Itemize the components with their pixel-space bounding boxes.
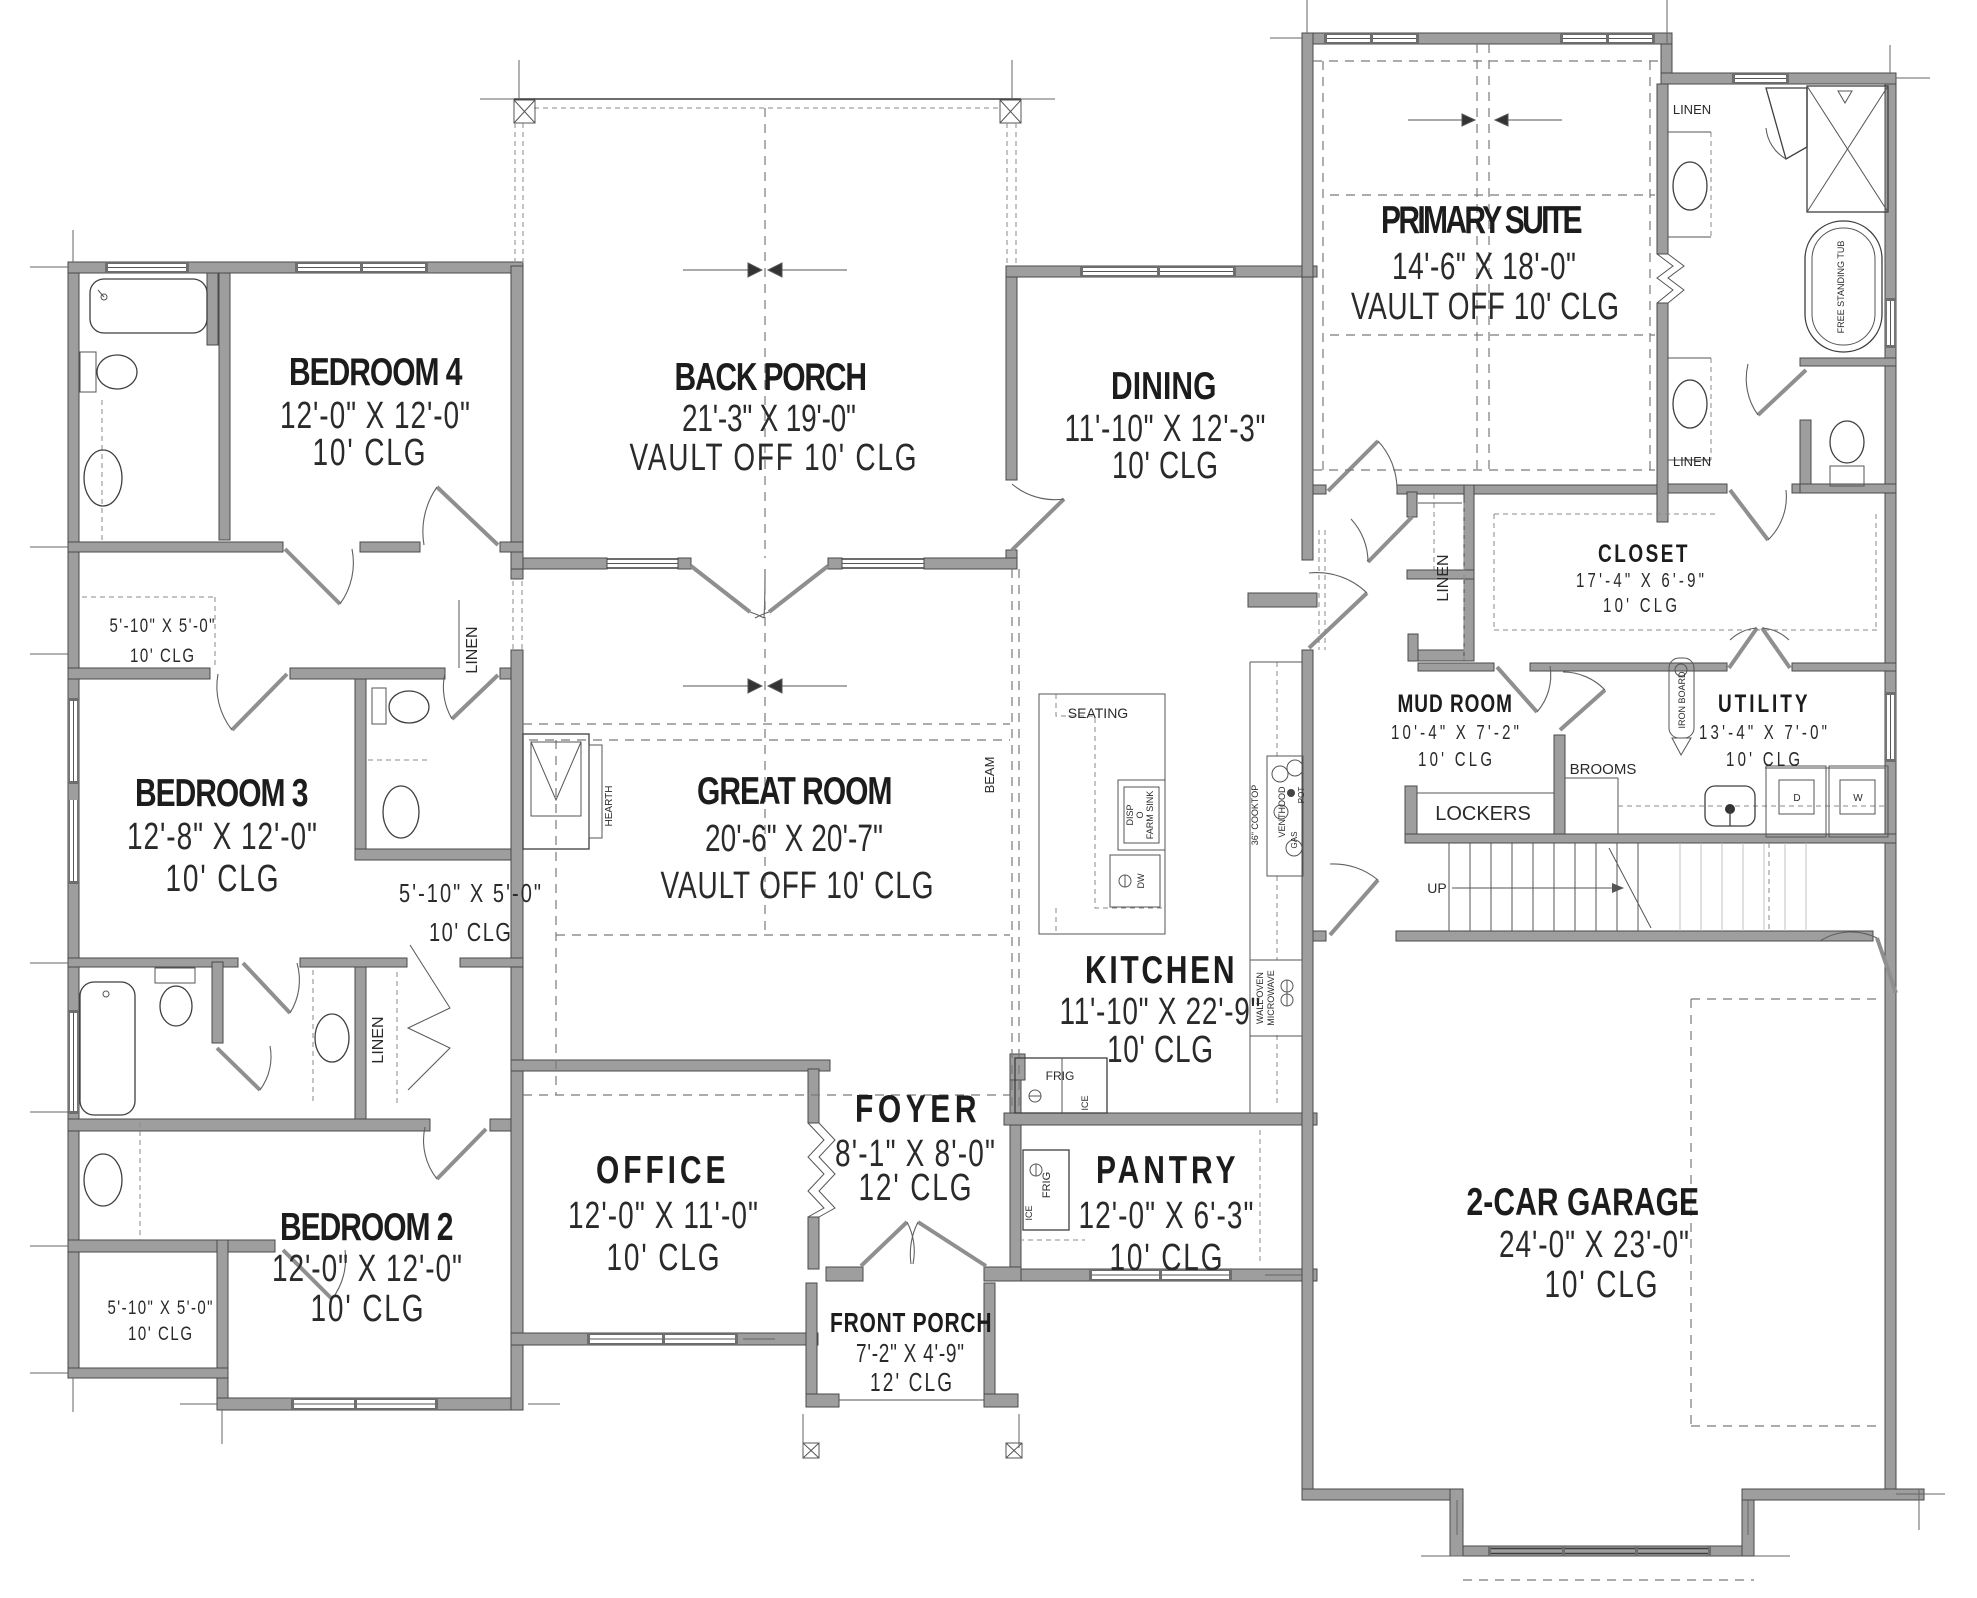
svg-text:7'-2" X 4'-9": 7'-2" X 4'-9" <box>856 1339 964 1367</box>
svg-text:11'-10" X 22'-9": 11'-10" X 22'-9" <box>1060 991 1261 1033</box>
svg-text:DISP: DISP <box>1125 804 1135 825</box>
svg-text:10' CLG: 10' CLG <box>1726 748 1800 771</box>
svg-text:10' CLG: 10' CLG <box>1545 1264 1658 1306</box>
svg-text:LINEN: LINEN <box>1435 554 1452 601</box>
svg-text:ICE: ICE <box>1024 1205 1034 1220</box>
svg-text:12'-8" X 12'-0": 12'-8" X 12'-0" <box>127 816 317 858</box>
svg-text:11'-10" X 12'-3": 11'-10" X 12'-3" <box>1065 408 1266 450</box>
svg-text:10' CLG: 10' CLG <box>130 644 194 666</box>
svg-text:MUD ROOM: MUD ROOM <box>1398 690 1513 718</box>
svg-text:SEATING: SEATING <box>1068 705 1128 721</box>
svg-text:10' CLG: 10' CLG <box>1112 445 1218 487</box>
svg-text:2-CAR GARAGE: 2-CAR GARAGE <box>1467 1181 1700 1224</box>
svg-text:10' CLG: 10' CLG <box>166 858 279 900</box>
svg-text:LINEN: LINEN <box>464 626 481 673</box>
svg-text:12'-0" X 12'-0": 12'-0" X 12'-0" <box>280 395 470 437</box>
svg-text:21'-3" X 19'-0": 21'-3" X 19'-0" <box>682 398 856 440</box>
svg-text:FREE STANDING TUB: FREE STANDING TUB <box>1836 241 1846 334</box>
svg-text:IRON BOARD: IRON BOARD <box>1677 671 1687 729</box>
svg-text:10' CLG: 10' CLG <box>1603 594 1677 617</box>
svg-text:GAS: GAS <box>1290 832 1299 849</box>
svg-text:FARM SINK: FARM SINK <box>1145 791 1155 840</box>
svg-text:VENTHOOD: VENTHOOD <box>1277 786 1287 838</box>
svg-text:12' CLG: 12' CLG <box>870 1368 952 1396</box>
svg-text:FRONT PORCH: FRONT PORCH <box>830 1308 992 1338</box>
svg-text:VAULT OFF 10' CLG: VAULT OFF 10' CLG <box>661 865 934 907</box>
svg-text:10' CLG: 10' CLG <box>429 917 511 946</box>
svg-text:36" COOKTOP: 36" COOKTOP <box>1250 785 1260 846</box>
svg-text:5'-10" X 5'-0": 5'-10" X 5'-0" <box>110 614 215 636</box>
svg-text:VAULT OFF 10' CLG: VAULT OFF 10' CLG <box>630 437 917 479</box>
svg-text:BACK PORCH: BACK PORCH <box>675 356 868 399</box>
svg-text:VAULT OFF 10' CLG: VAULT OFF 10' CLG <box>1351 286 1619 328</box>
svg-text:PRIMARY SUITE: PRIMARY SUITE <box>1381 199 1583 242</box>
svg-text:BEDROOM 3: BEDROOM 3 <box>135 772 309 815</box>
svg-text:10' CLG: 10' CLG <box>313 432 426 474</box>
svg-text:MICROWAVE: MICROWAVE <box>1266 970 1276 1026</box>
svg-text:5'-10" X 5'-0": 5'-10" X 5'-0" <box>108 1296 213 1318</box>
svg-text:O: O <box>1135 811 1145 818</box>
svg-text:LINEN: LINEN <box>1673 454 1711 469</box>
svg-text:14'-6" X 18'-0": 14'-6" X 18'-0" <box>1392 246 1576 288</box>
svg-text:BEDROOM 4: BEDROOM 4 <box>289 351 463 394</box>
svg-text:10' CLG: 10' CLG <box>128 1322 192 1344</box>
svg-text:20'-6" X 20'-7": 20'-6" X 20'-7" <box>705 818 883 860</box>
svg-text:DW: DW <box>1136 873 1146 888</box>
svg-text:24'-0" X 23'-0": 24'-0" X 23'-0" <box>1499 1224 1689 1266</box>
svg-text:POT: POT <box>1297 787 1306 804</box>
svg-text:WALL OVEN: WALL OVEN <box>1255 972 1265 1024</box>
svg-text:FRIG: FRIG <box>1046 1069 1075 1083</box>
svg-text:10' CLG: 10' CLG <box>311 1288 424 1330</box>
svg-text:UTILITY: UTILITY <box>1718 690 1808 718</box>
svg-text:LOCKERS: LOCKERS <box>1435 803 1531 825</box>
svg-text:12'-0" X 12'-0": 12'-0" X 12'-0" <box>272 1248 462 1290</box>
svg-text:D: D <box>1793 793 1800 804</box>
svg-text:12' CLG: 12' CLG <box>859 1167 972 1209</box>
svg-text:DINING: DINING <box>1111 365 1217 408</box>
svg-text:12'-0" X 6'-3": 12'-0" X 6'-3" <box>1079 1195 1254 1237</box>
svg-text:LINEN: LINEN <box>1673 102 1711 117</box>
svg-text:10' CLG: 10' CLG <box>1418 748 1492 771</box>
svg-text:LINEN: LINEN <box>370 1016 387 1063</box>
svg-text:ICE: ICE <box>1080 1095 1090 1110</box>
svg-text:HEARTH: HEARTH <box>604 786 615 827</box>
svg-text:10' CLG: 10' CLG <box>607 1237 720 1279</box>
svg-text:GREAT ROOM: GREAT ROOM <box>697 770 893 813</box>
svg-text:FOYER: FOYER <box>855 1088 977 1131</box>
svg-text:10' CLG: 10' CLG <box>1110 1237 1223 1279</box>
svg-text:UP: UP <box>1427 880 1446 896</box>
svg-text:BEAM: BEAM <box>982 757 997 794</box>
svg-text:W: W <box>1853 793 1863 804</box>
svg-text:FRIG: FRIG <box>1041 1172 1053 1198</box>
svg-text:BROOMS: BROOMS <box>1570 761 1637 778</box>
svg-text:BEDROOM 2: BEDROOM 2 <box>280 1206 454 1249</box>
svg-text:12'-0" X 11'-0": 12'-0" X 11'-0" <box>568 1195 758 1237</box>
svg-text:10' CLG: 10' CLG <box>1107 1029 1213 1071</box>
svg-text:OFFICE: OFFICE <box>596 1149 726 1192</box>
